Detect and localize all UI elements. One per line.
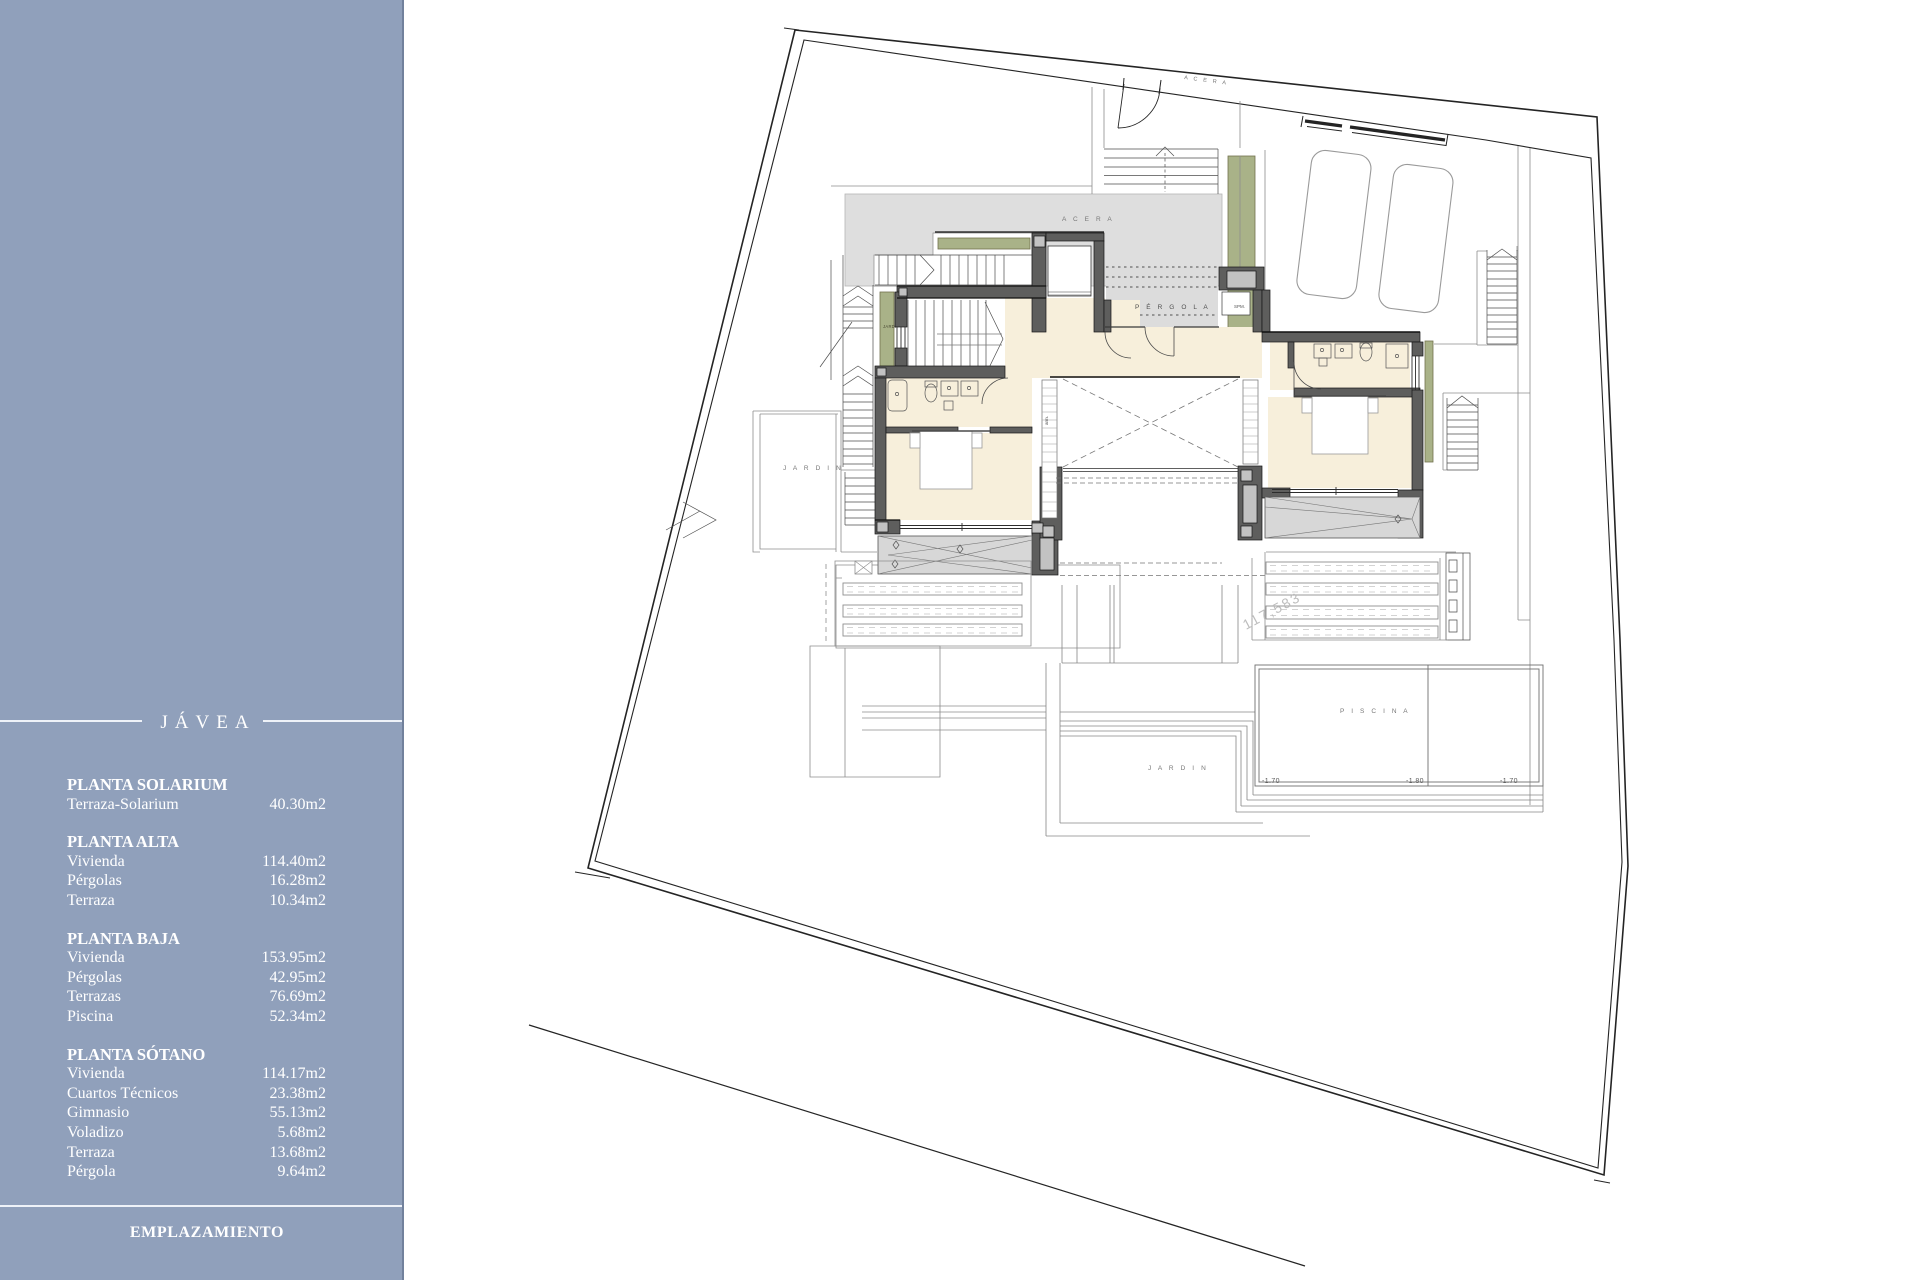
- svg-text:arm.: arm.: [1044, 416, 1049, 425]
- svg-text:-1.80: -1.80: [1406, 778, 1424, 785]
- svg-text:P É R G O L A: P É R G O L A: [1135, 302, 1210, 311]
- svg-text:JARD.: JARD.: [883, 324, 897, 329]
- svg-text:-1.70: -1.70: [1500, 778, 1518, 785]
- svg-text:J A R D I N: J A R D I N: [1148, 765, 1208, 772]
- svg-text:P I S C I N A: P I S C I N A: [1340, 708, 1410, 715]
- svg-text:A C E R A: A C E R A: [1062, 216, 1114, 223]
- svg-text:J A R D I N: J A R D I N: [783, 465, 843, 472]
- svg-text:SPM.: SPM.: [1234, 304, 1245, 309]
- svg-text:-1.70: -1.70: [1262, 778, 1280, 785]
